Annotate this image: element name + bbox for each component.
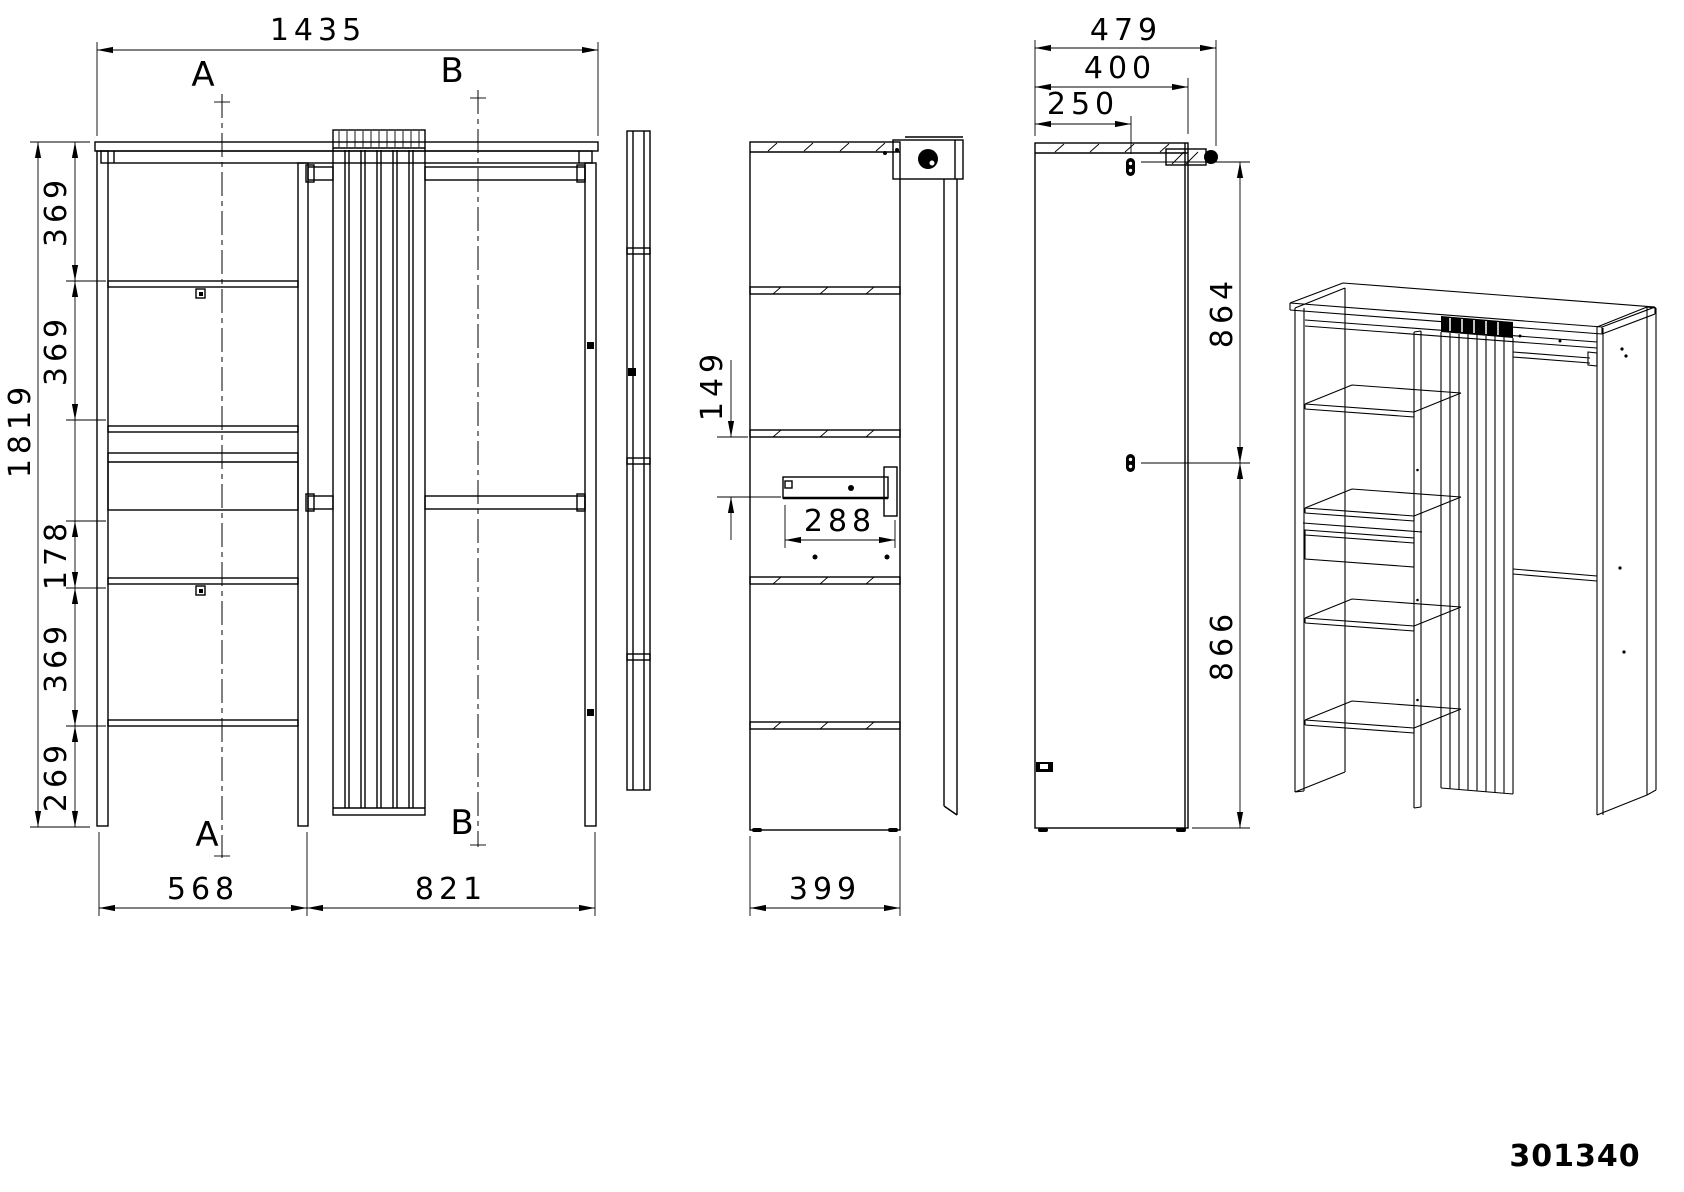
hanging-rod-middle	[306, 494, 585, 511]
dim-left-section-width: 568	[167, 872, 239, 907]
rod-end	[918, 149, 938, 169]
panel-view-dimensions: 479 400 250 864 866	[1035, 13, 1250, 828]
dim-shelf-gap-2: 369	[39, 314, 74, 386]
wardrobe-assembly-drawing: A A B B 1435 1819	[0, 0, 1684, 1192]
dim-shelf-gap-4: 269	[39, 740, 74, 812]
dim-keyhole-spacing-lower: 866	[1205, 609, 1240, 681]
hanging-rod-top	[306, 165, 585, 182]
section-label-a-top: A	[191, 55, 214, 95]
dim-drawer-depth: 288	[804, 504, 876, 539]
dim-shelf-gap-1: 369	[39, 175, 74, 247]
keyhole-fitting-upper	[1126, 158, 1135, 176]
side-view-structure	[627, 131, 963, 832]
dim-keyhole-inset: 250	[1047, 87, 1119, 122]
rod-bracket	[1166, 149, 1218, 165]
shelf-clip	[196, 289, 205, 298]
curtain-iso	[1441, 316, 1513, 794]
rod-iso	[1513, 352, 1597, 366]
shelf-clip	[196, 586, 205, 595]
section-label-a-bottom: A	[195, 815, 218, 855]
dim-panel-depth-2: 400	[1084, 51, 1156, 86]
dim-panel-depth: 399	[789, 872, 861, 907]
section-label-b-top: B	[440, 51, 463, 91]
side-view: 149 288 399	[627, 131, 963, 916]
front-view-dimensions: 1435 1819 369 369 178 369 269 56	[3, 13, 598, 916]
keyhole-fitting-lower	[1126, 454, 1135, 472]
panel-view: 479 400 250 864 866	[1035, 13, 1250, 832]
curtain	[333, 130, 425, 815]
isometric-view	[1290, 283, 1656, 815]
section-label-b-bottom: B	[450, 803, 473, 843]
section-line-a: A A	[191, 55, 230, 858]
rod-support-box	[883, 137, 963, 179]
section-line-b: B B	[440, 51, 486, 847]
mid-rail-iso	[1513, 569, 1597, 581]
dim-keyhole-spacing-upper: 864	[1205, 276, 1240, 348]
curtain-profile	[944, 179, 957, 815]
part-number: 301340	[1509, 1139, 1640, 1174]
front-view: A A B B 1435 1819	[3, 13, 598, 916]
dim-total-depth: 479	[1090, 13, 1162, 48]
panel-view-structure	[1035, 143, 1218, 832]
dim-right-section-width: 821	[415, 872, 487, 907]
technical-drawing-page: A A B B 1435 1819	[0, 0, 1684, 1192]
dim-total-height: 1819	[3, 382, 38, 478]
dim-shelf-to-rail: 149	[695, 349, 730, 421]
drawer-iso	[1303, 523, 1422, 567]
wall-slot	[1036, 762, 1053, 772]
dim-total-width: 1435	[270, 13, 366, 48]
front-view-structure	[95, 142, 598, 826]
dim-drawer-height: 178	[39, 518, 74, 590]
dim-shelf-gap-3: 369	[39, 621, 74, 693]
